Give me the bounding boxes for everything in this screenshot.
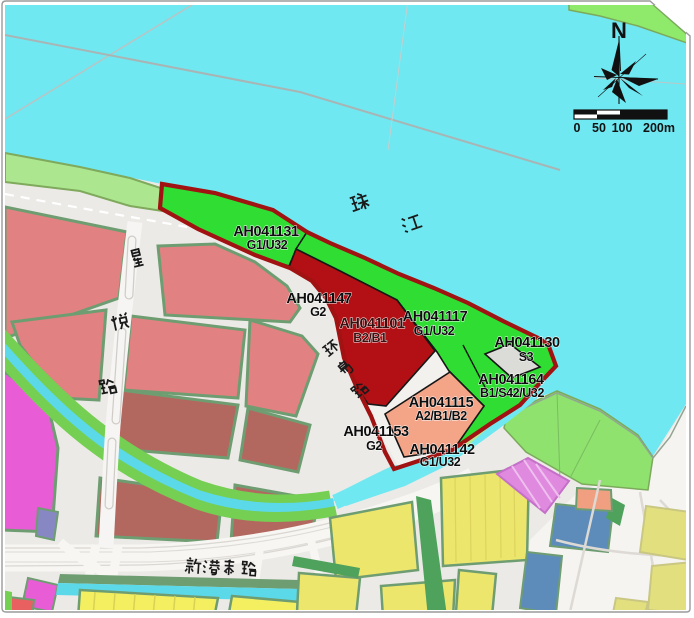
svg-text:G2: G2 [366, 439, 382, 453]
svg-text:AH041117: AH041117 [403, 309, 468, 325]
svg-text:B1/S42/U32: B1/S42/U32 [480, 386, 545, 400]
svg-text:0: 0 [574, 121, 581, 135]
svg-text:AH041153: AH041153 [343, 424, 409, 440]
svg-text:B2/B1: B2/B1 [353, 331, 387, 345]
svg-text:AH041130: AH041130 [494, 335, 560, 351]
svg-text:N: N [611, 18, 627, 43]
svg-text:A2/B1/B2: A2/B1/B2 [415, 409, 467, 423]
svg-text:G1/U32: G1/U32 [420, 455, 461, 469]
svg-text:50: 50 [592, 121, 606, 135]
svg-text:100: 100 [612, 121, 633, 135]
svg-text:200m: 200m [643, 121, 675, 135]
svg-text:G1/U32: G1/U32 [414, 324, 455, 338]
svg-text:G2: G2 [310, 305, 326, 319]
svg-text:G1/U32: G1/U32 [247, 238, 288, 252]
svg-text:AH041101: AH041101 [339, 316, 405, 332]
svg-text:S3: S3 [519, 350, 534, 364]
